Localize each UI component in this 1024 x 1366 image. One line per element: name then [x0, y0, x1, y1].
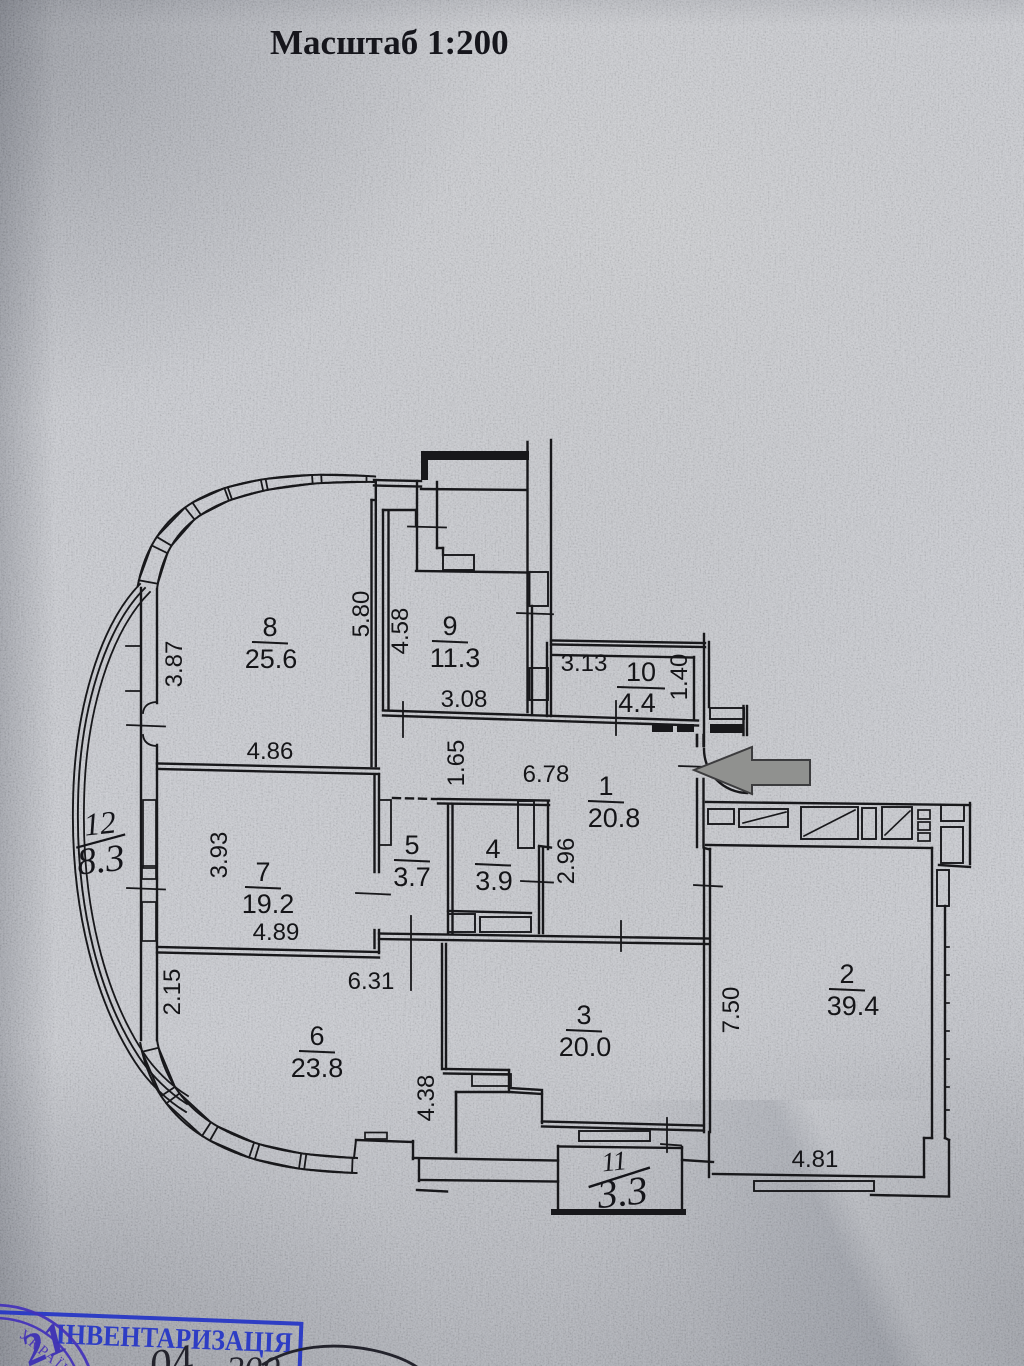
svg-text:39.4: 39.4 [827, 991, 880, 1021]
svg-text:19.2: 19.2 [242, 889, 295, 919]
svg-text:3.9: 3.9 [475, 866, 513, 896]
svg-text:6.31: 6.31 [348, 968, 395, 995]
svg-text:5.80: 5.80 [348, 591, 375, 638]
svg-text:Масштаб 1:200: Масштаб 1:200 [270, 23, 509, 62]
svg-text:4.89: 4.89 [253, 919, 300, 946]
svg-text:2.15: 2.15 [159, 969, 186, 1016]
svg-text:4.38: 4.38 [413, 1075, 440, 1122]
svg-text:2.96: 2.96 [553, 838, 580, 885]
svg-text:25.6: 25.6 [245, 644, 298, 674]
svg-text:3.3: 3.3 [594, 1167, 649, 1217]
svg-text:7: 7 [255, 857, 270, 887]
svg-text:5: 5 [404, 830, 419, 860]
svg-text:1: 1 [598, 771, 613, 801]
svg-text:20.0: 20.0 [559, 1032, 612, 1062]
svg-text:11.3: 11.3 [430, 643, 481, 673]
svg-text:7.50: 7.50 [718, 987, 745, 1034]
svg-text:4.4: 4.4 [618, 688, 656, 718]
svg-text:10: 10 [626, 657, 656, 687]
svg-text:3.7: 3.7 [393, 862, 431, 892]
svg-text:3.87: 3.87 [161, 641, 188, 688]
svg-text:4.81: 4.81 [792, 1146, 839, 1173]
svg-text:3.93: 3.93 [206, 832, 233, 879]
svg-text:1.40: 1.40 [666, 654, 693, 701]
svg-text:200: 200 [226, 1349, 280, 1366]
svg-text:3: 3 [576, 1000, 591, 1030]
svg-text:8.3: 8.3 [75, 837, 127, 884]
svg-text:12: 12 [82, 803, 118, 842]
svg-text:4.58: 4.58 [387, 608, 414, 655]
svg-text:3.13: 3.13 [561, 650, 608, 677]
svg-text:9: 9 [442, 611, 457, 641]
svg-text:6: 6 [309, 1021, 324, 1051]
svg-text:20.8: 20.8 [588, 803, 641, 833]
svg-text:4.86: 4.86 [247, 738, 294, 765]
svg-text:3.08: 3.08 [441, 686, 488, 713]
svg-text:4: 4 [485, 834, 500, 864]
svg-text:1.65: 1.65 [443, 740, 470, 787]
svg-text:23.8: 23.8 [291, 1053, 344, 1083]
svg-text:6.78: 6.78 [523, 761, 570, 788]
svg-text:8: 8 [262, 612, 277, 642]
svg-text:2: 2 [839, 959, 854, 989]
